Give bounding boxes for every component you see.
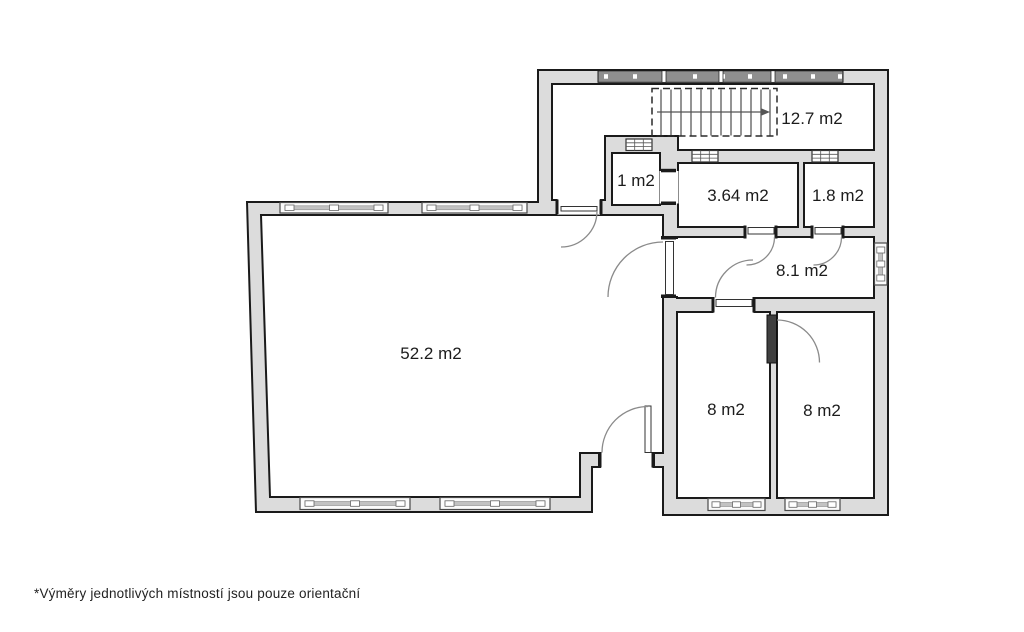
living-notch-door xyxy=(602,406,651,453)
door-swing-arc xyxy=(777,320,820,363)
door-swing-arc xyxy=(602,407,648,453)
door-swing-arc xyxy=(561,211,597,247)
staircase xyxy=(652,89,777,137)
bedroom-right-window xyxy=(785,499,840,511)
bedroom-left-door xyxy=(716,260,754,307)
door-swing-arc xyxy=(608,242,663,297)
room-area-label-closet: 1 m2 xyxy=(617,171,655,190)
floor-plan-drawing: 52.2 m2 12.7 m2 1 m2 3.64 m2 1.8 m2 8.1 … xyxy=(0,0,1024,632)
bathroom-door xyxy=(747,228,775,266)
wall-structure xyxy=(247,70,888,515)
hallway-side-window xyxy=(875,243,888,285)
facade-window-band xyxy=(598,71,843,83)
bedroom-right-door xyxy=(767,315,820,363)
room-area-label-bathroom: 3.64 m2 xyxy=(707,186,768,205)
room-area-label-wc: 1.8 m2 xyxy=(812,186,864,205)
door-swing-arc xyxy=(747,237,775,265)
wc-transom-window xyxy=(812,151,838,163)
bedroom-left-window xyxy=(708,499,765,511)
room-area-label-living: 52.2 m2 xyxy=(400,344,461,363)
living-bottom-window-2 xyxy=(440,498,550,510)
room-area-label-bedroom-left: 8 m2 xyxy=(707,400,745,419)
area-disclaimer-note: *Výměry jednotlivých místností jsou pouz… xyxy=(34,586,360,601)
stairs-direction-arrow xyxy=(761,108,770,116)
bathroom-transom-window xyxy=(692,151,718,163)
room-area-label-bedroom-right: 8 m2 xyxy=(803,401,841,420)
wc-door xyxy=(814,228,842,266)
living-top-window-1 xyxy=(280,203,388,214)
room-area-label-hallway: 8.1 m2 xyxy=(776,261,828,280)
living-bottom-window-1 xyxy=(300,498,410,510)
closet-transom-window xyxy=(626,139,652,151)
living-top-window-2 xyxy=(422,203,527,214)
floor-plan-page: 52.2 m2 12.7 m2 1 m2 3.64 m2 1.8 m2 8.1 … xyxy=(0,0,1024,632)
room-area-label-staircase: 12.7 m2 xyxy=(781,109,842,128)
